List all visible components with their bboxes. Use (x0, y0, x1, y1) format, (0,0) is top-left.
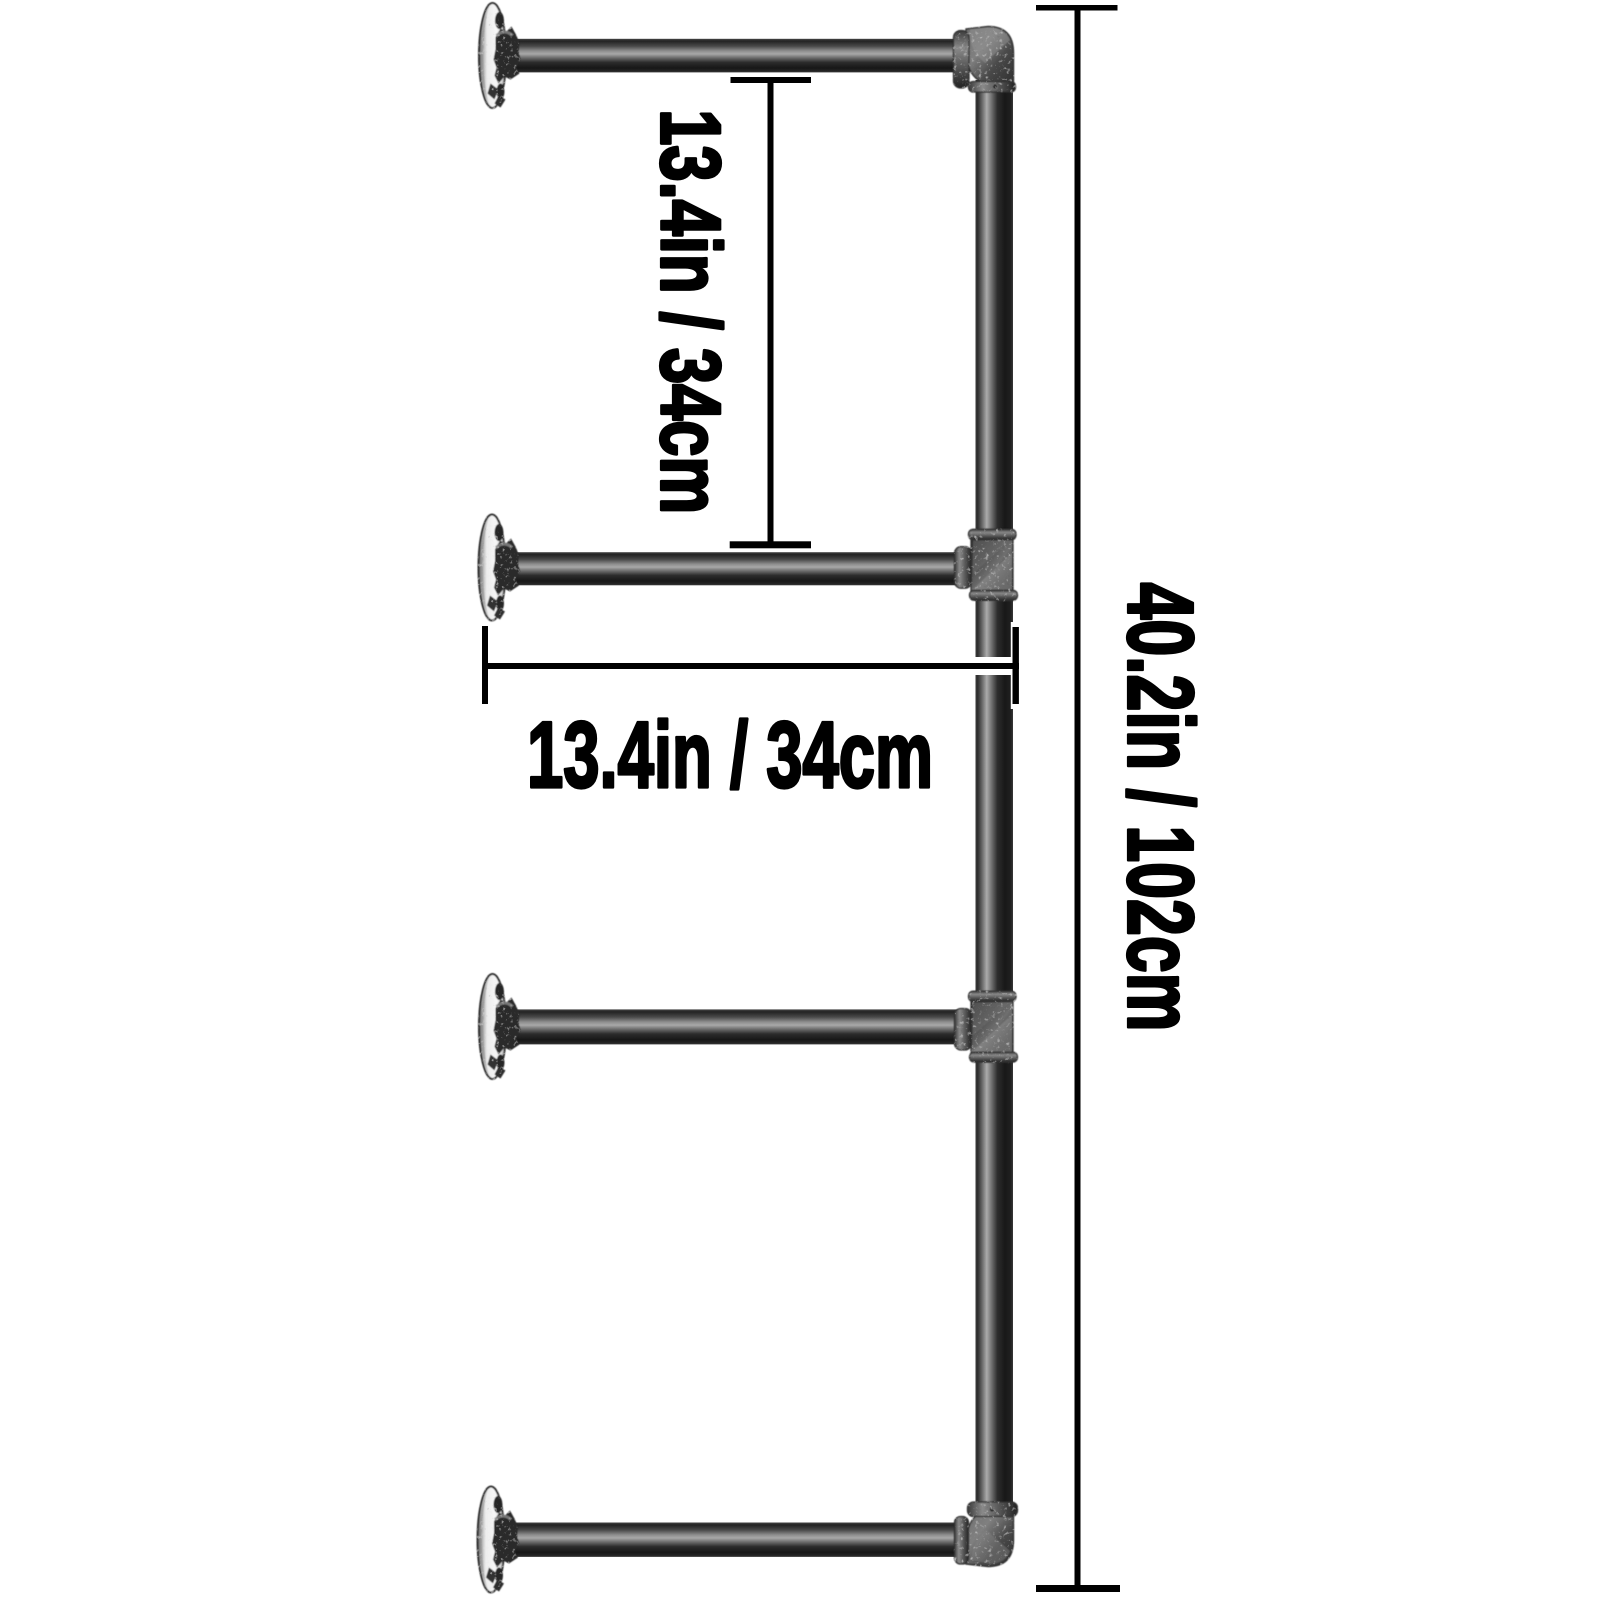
svg-text:13.4in / 34cm: 13.4in / 34cm (644, 109, 738, 514)
svg-text:13.4in / 34cm: 13.4in / 34cm (527, 702, 933, 807)
svg-text:40.2in / 102cm: 40.2in / 102cm (1109, 583, 1213, 1032)
